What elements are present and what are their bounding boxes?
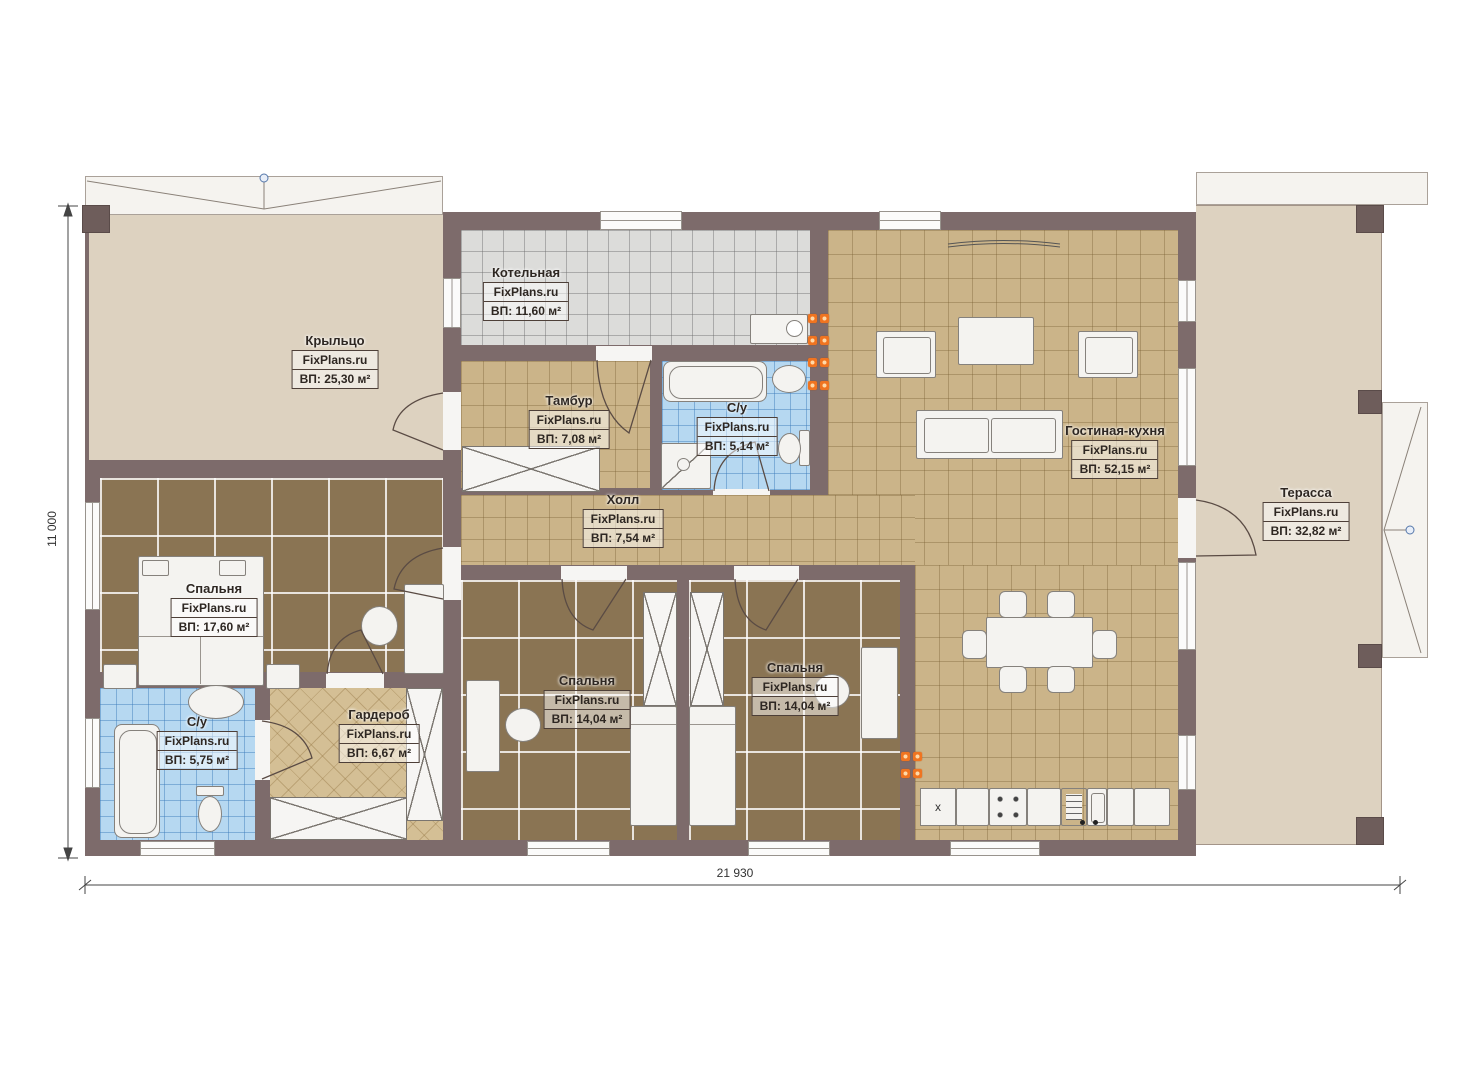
sink xyxy=(772,365,806,393)
sofa xyxy=(916,410,1063,459)
room-area: ВП: 5,14 м² xyxy=(698,436,777,455)
armchair xyxy=(876,331,936,378)
window xyxy=(85,502,100,610)
window xyxy=(443,278,461,328)
door-opening-bedroom-left xyxy=(443,547,461,600)
room-label-bedroom-right: Спальня FixPlans.ruВП: 14,04 м² xyxy=(752,660,839,716)
nightstand xyxy=(266,664,300,689)
floor-plan: x xyxy=(0,0,1474,1080)
window xyxy=(85,718,100,788)
room-area: ВП: 25,30 м² xyxy=(293,369,378,388)
dim-arrow xyxy=(64,204,72,216)
room-name: Крыльцо xyxy=(292,333,379,348)
terrace-column xyxy=(1357,206,1383,232)
window xyxy=(1178,562,1196,650)
brand-watermark: FixPlans.ru xyxy=(698,418,777,436)
room-name: Гардероб xyxy=(339,707,420,722)
radiator xyxy=(808,381,832,390)
brand-watermark: FixPlans.ru xyxy=(340,725,419,743)
desk xyxy=(861,647,898,739)
room-area: ВП: 11,60 м² xyxy=(484,301,568,320)
kitchen-cabinet xyxy=(956,788,989,826)
door-opening-terrace xyxy=(1178,498,1196,558)
faucet-dot xyxy=(1080,820,1085,825)
room-label-porch: Крыльцо FixPlans.ruВП: 25,30 м² xyxy=(292,333,379,389)
room-name: Терасса xyxy=(1263,485,1350,500)
faucet-dot xyxy=(1093,820,1098,825)
radiator xyxy=(808,314,832,323)
room-name: Холл xyxy=(583,492,664,507)
porch-canopy xyxy=(85,176,443,215)
room-area: ВП: 14,04 м² xyxy=(753,696,838,715)
door-opening-bedroom-right xyxy=(734,566,799,580)
window xyxy=(748,841,830,856)
window xyxy=(1178,735,1196,790)
dim-slash xyxy=(79,880,91,890)
brand-watermark: FixPlans.ru xyxy=(158,732,237,750)
terrace-top-canopy xyxy=(1196,172,1428,205)
door-opening-boiler xyxy=(596,346,652,361)
closet xyxy=(462,446,600,492)
brand-watermark: FixPlans.ru xyxy=(172,599,257,617)
window xyxy=(1178,368,1196,466)
porch-floor xyxy=(85,215,443,460)
brand-watermark: FixPlans.ru xyxy=(753,678,838,696)
room-label-bedroom-left: Спальня FixPlans.ruВП: 17,60 м² xyxy=(171,581,258,637)
window xyxy=(879,211,941,230)
dimension-width-label: 21 930 xyxy=(695,866,775,880)
desk xyxy=(466,680,500,772)
hall-floor xyxy=(461,495,915,565)
porch-column xyxy=(83,206,109,232)
terrace-column xyxy=(1359,645,1381,667)
door-opening-porch xyxy=(443,392,461,450)
room-name: Котельная xyxy=(483,265,569,280)
terrace-column xyxy=(1359,391,1381,413)
dining-table xyxy=(986,617,1093,668)
radiator xyxy=(901,769,925,778)
radiator xyxy=(808,336,832,345)
dining-chair xyxy=(999,666,1027,693)
room-name: Спальня xyxy=(171,581,258,596)
room-name: Тамбур xyxy=(529,393,610,408)
window xyxy=(527,841,610,856)
bathtub xyxy=(114,724,160,838)
room-area: ВП: 5,75 м² xyxy=(158,750,237,769)
dimension-height-label: 11 000 xyxy=(45,494,59,564)
cabinet-mark: x xyxy=(935,800,941,814)
room-label-tambour: Тамбур FixPlans.ruВП: 7,08 м² xyxy=(529,393,610,449)
pillow xyxy=(219,560,246,576)
dining-chair xyxy=(1047,591,1075,618)
door-opening-bathroom-bottom xyxy=(255,720,270,780)
bathtub xyxy=(663,361,767,402)
kitchen-cabinet: x xyxy=(920,788,956,826)
dim-arrow xyxy=(64,848,72,860)
toilet-bowl xyxy=(198,796,222,832)
radiator xyxy=(901,752,925,761)
dining-chair xyxy=(962,630,987,659)
dining-chair xyxy=(1047,666,1075,693)
pillow xyxy=(142,560,169,576)
room-name: Спальня xyxy=(544,673,631,688)
toilet-bowl xyxy=(778,433,801,464)
room-area: ВП: 17,60 м² xyxy=(172,617,257,636)
brand-watermark: FixPlans.ru xyxy=(293,351,378,369)
brand-watermark: FixPlans.ru xyxy=(484,283,568,301)
window xyxy=(140,841,215,856)
brand-watermark: FixPlans.ru xyxy=(584,510,663,528)
door-opening-bathroom-top xyxy=(713,489,770,495)
room-name: Спальня xyxy=(752,660,839,675)
brand-watermark: FixPlans.ru xyxy=(1073,441,1158,459)
door-opening-bedroom-mid xyxy=(561,566,627,580)
room-area: ВП: 32,82 м² xyxy=(1264,521,1349,540)
bed-pillow-line xyxy=(690,724,735,725)
toilet-tank xyxy=(196,786,224,796)
kitchen-cabinet xyxy=(1107,788,1134,826)
radiator xyxy=(808,358,832,367)
window xyxy=(600,211,682,230)
room-label-hall: Холл FixPlans.ruВП: 7,54 м² xyxy=(583,492,664,548)
brand-watermark: FixPlans.ru xyxy=(1264,503,1349,521)
nightstand xyxy=(103,664,137,689)
desk xyxy=(404,584,444,674)
kitchen-cabinet xyxy=(1027,788,1061,826)
room-label-living: Гостиная-кухня FixPlans.ruВП: 52,15 м² xyxy=(1065,423,1165,479)
chair xyxy=(361,606,398,646)
bed-pillow-line xyxy=(631,724,676,725)
terrace-side-canopy xyxy=(1382,402,1428,658)
bed-split-line xyxy=(200,636,201,684)
closet xyxy=(690,592,724,706)
terrace-column xyxy=(1357,818,1383,844)
dining-chair xyxy=(1092,630,1117,659)
room-area: ВП: 7,08 м² xyxy=(530,429,609,448)
room-label-wardrobe: Гардероб FixPlans.ruВП: 6,67 м² xyxy=(339,707,420,763)
door-opening-wardrobe xyxy=(326,673,384,688)
brand-watermark: FixPlans.ru xyxy=(530,411,609,429)
closet xyxy=(643,592,677,706)
chair xyxy=(505,708,541,742)
room-label-bedroom-mid: Спальня FixPlans.ruВП: 14,04 м² xyxy=(544,673,631,729)
closet xyxy=(270,797,407,840)
armchair xyxy=(1078,331,1138,378)
room-area: ВП: 52,15 м² xyxy=(1073,459,1158,478)
room-label-terrace: Терасса FixPlans.ruВП: 32,82 м² xyxy=(1263,485,1350,541)
window xyxy=(950,841,1040,856)
room-label-su-bottom: С/у FixPlans.ruВП: 5,75 м² xyxy=(157,714,238,770)
boiler-unit-dial xyxy=(786,320,803,337)
room-area: ВП: 6,67 м² xyxy=(340,743,419,762)
room-name: С/у xyxy=(697,400,778,415)
room-label-su-top: С/у FixPlans.ruВП: 5,14 м² xyxy=(697,400,778,456)
stove xyxy=(989,788,1027,826)
dining-chair xyxy=(999,591,1027,618)
dim-slash xyxy=(1394,880,1406,890)
room-label-boiler: Котельная FixPlans.ruВП: 11,60 м² xyxy=(483,265,569,321)
coffee-table xyxy=(958,317,1034,365)
room-name: С/у xyxy=(157,714,238,729)
kitchen-cabinet xyxy=(1134,788,1170,826)
brand-watermark: FixPlans.ru xyxy=(545,691,630,709)
room-area: ВП: 7,54 м² xyxy=(584,528,663,547)
shower-drain xyxy=(677,458,690,471)
room-area: ВП: 14,04 м² xyxy=(545,709,630,728)
room-name: Гостиная-кухня xyxy=(1065,423,1165,438)
window xyxy=(1178,280,1196,322)
